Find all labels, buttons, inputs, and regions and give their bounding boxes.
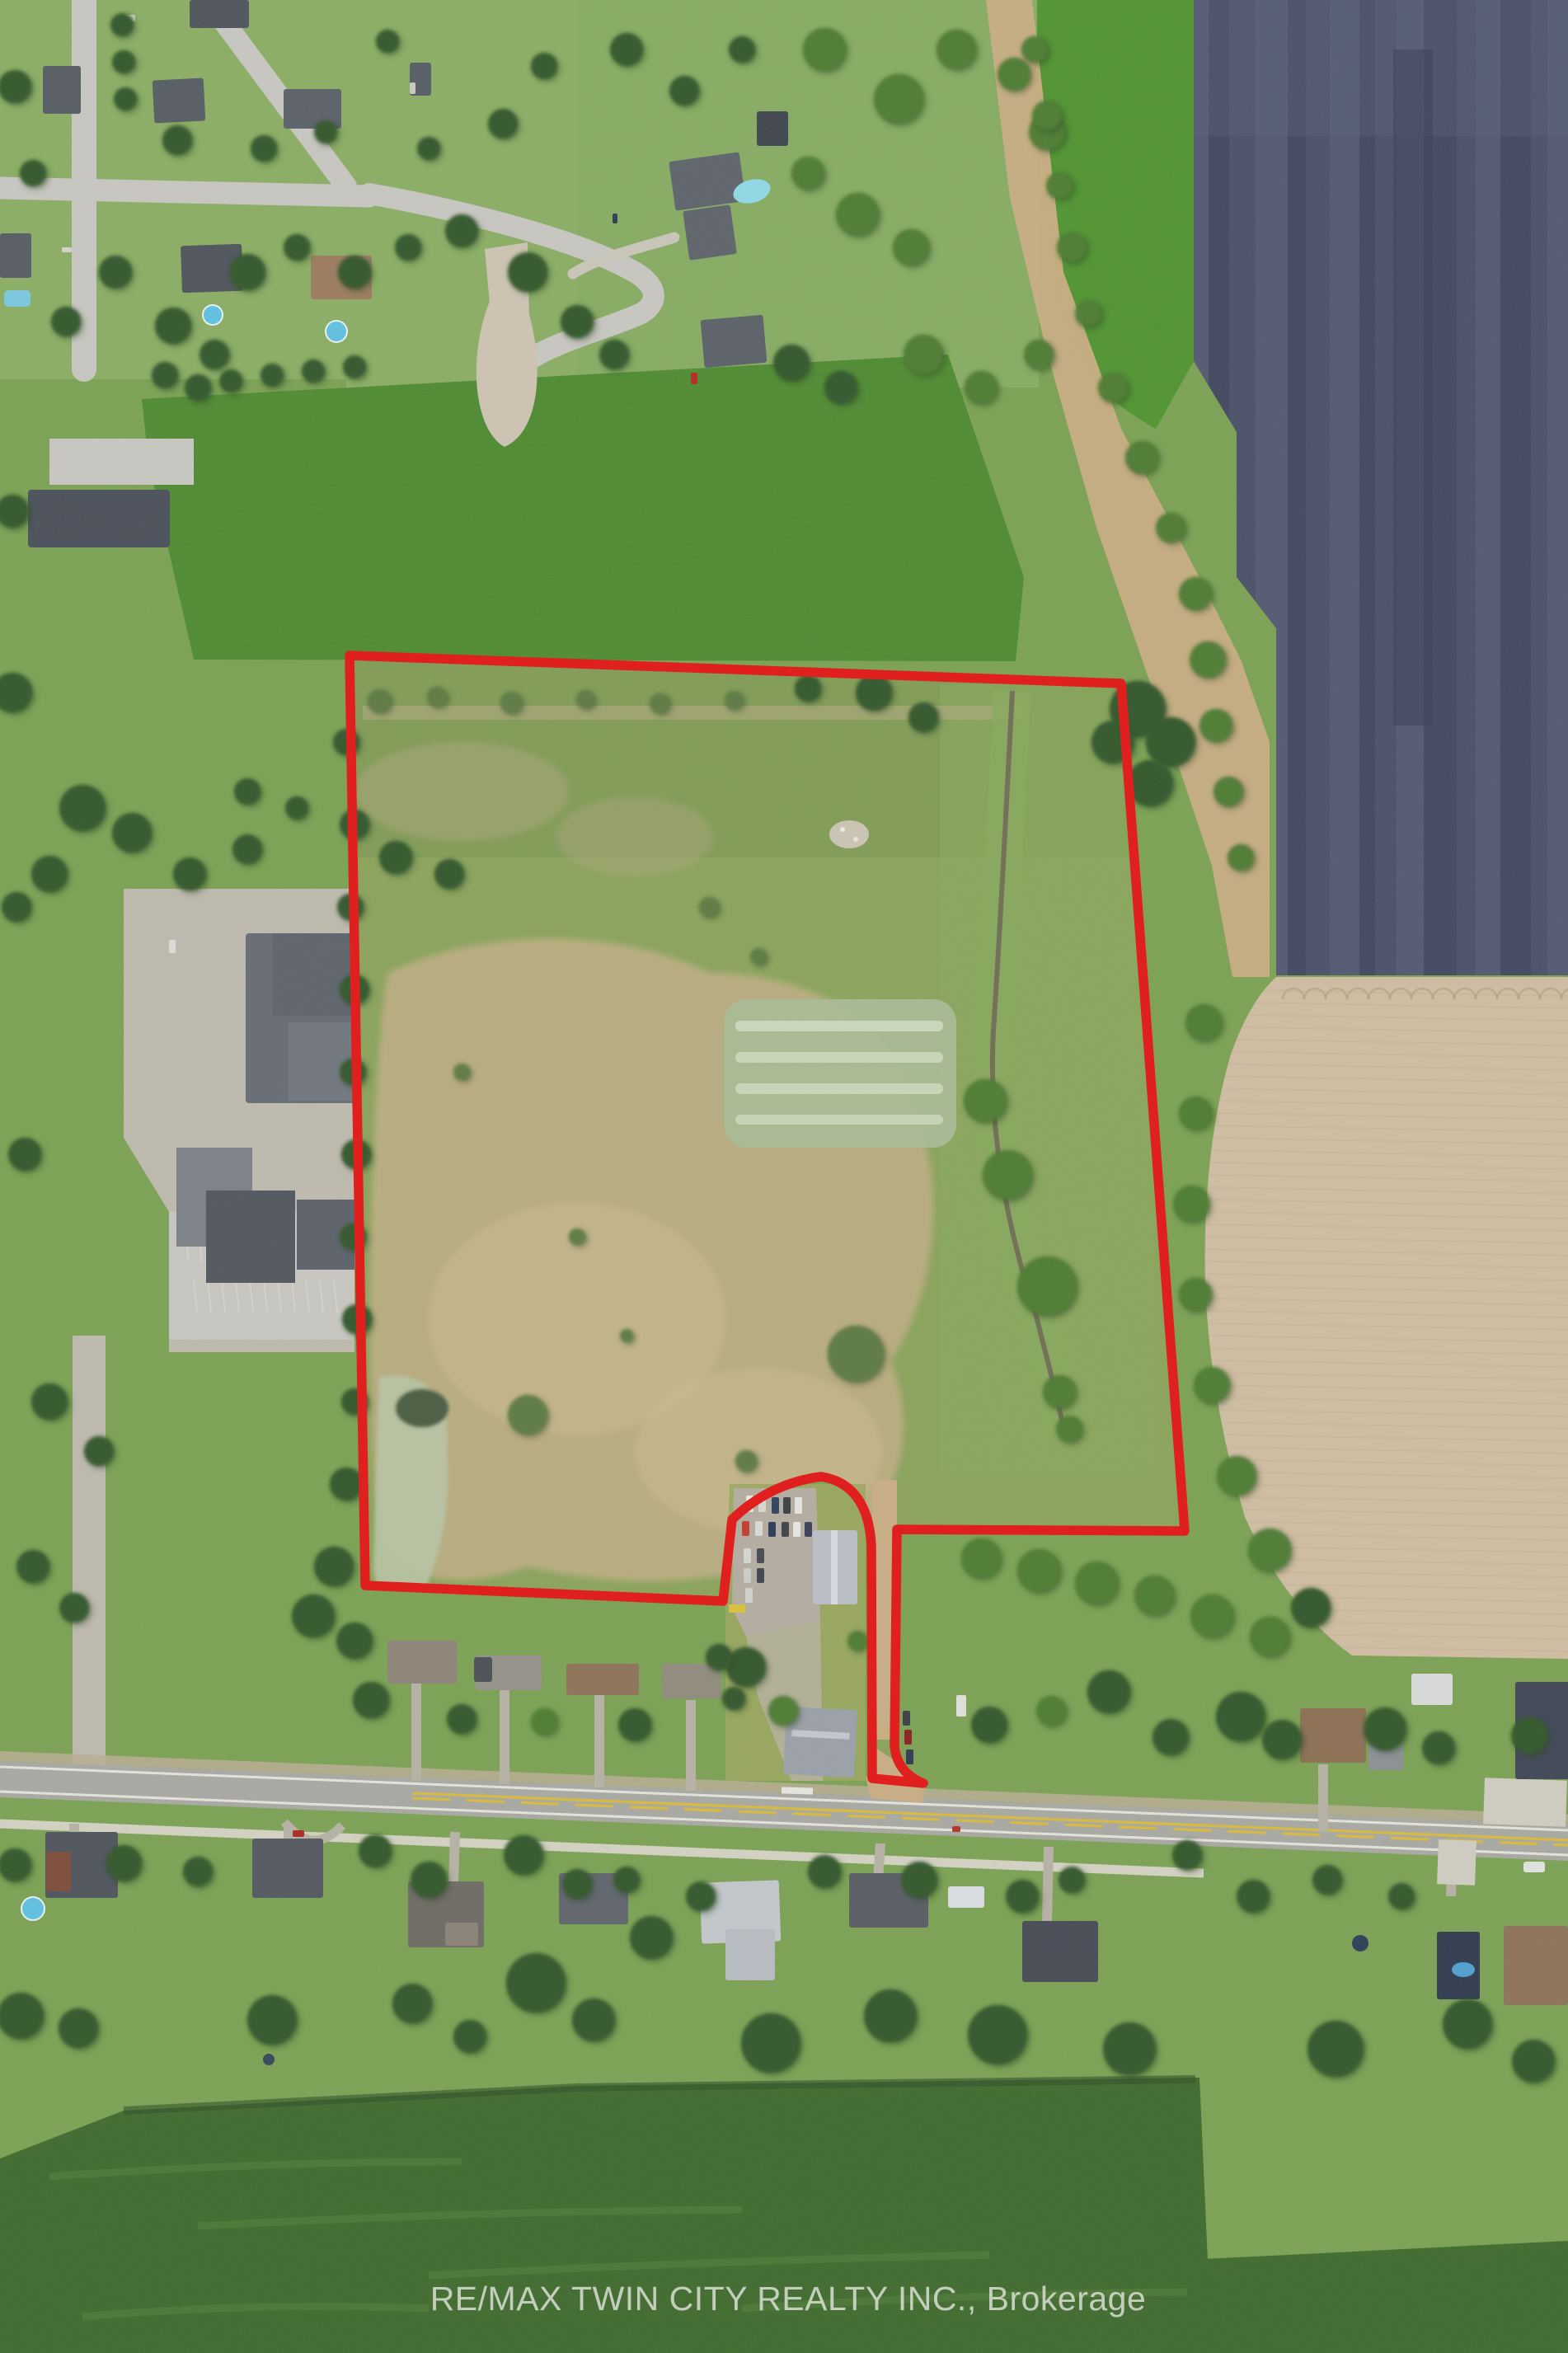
aerial-photo-canvas: RE/MAX TWIN CITY REALTY INC., Brokerage (0, 0, 1568, 2353)
photo-grain (0, 0, 1568, 2353)
watermark-text: RE/MAX TWIN CITY REALTY INC., Brokerage (430, 2280, 1147, 2318)
aerial-photo: RE/MAX TWIN CITY REALTY INC., Brokerage (0, 0, 1568, 2353)
